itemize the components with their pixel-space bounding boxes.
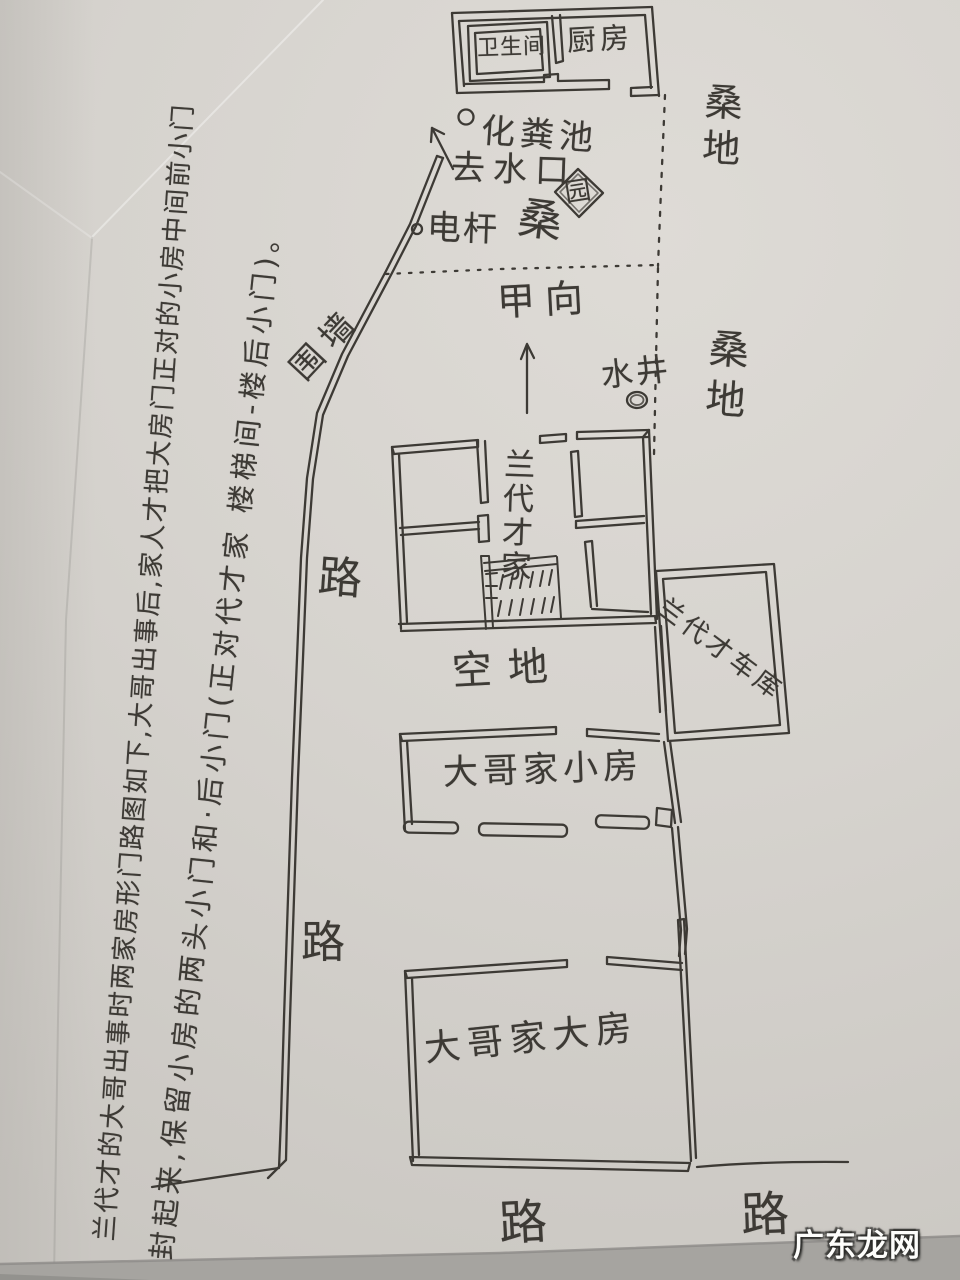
kitchen-label: 厨房 — [566, 22, 634, 56]
drain-outlet-label: 去水口 — [450, 151, 577, 191]
mulberry-field-right-label: 桑地 — [699, 327, 748, 430]
road-label-bottom-right: 路 — [740, 1189, 790, 1241]
mulberry-field-top-label: 桑地 — [696, 81, 741, 175]
main-house-label: 兰代才家 — [496, 447, 533, 584]
mulberry-scribble: 桑 — [515, 195, 564, 246]
watermark: 广东龙网 — [793, 1230, 921, 1263]
water-well-label: 水井 — [599, 352, 672, 393]
direction-arrow — [521, 344, 534, 413]
road-label-left-lower: 路 — [301, 920, 345, 966]
photographed-paper-sketch: 兰代才的大哥出事时两家房形门路图如下,大哥出事后,家人才把大房门正对的小房中间前… — [0, 0, 960, 1280]
power-pole-label: 电杆 — [426, 211, 499, 249]
open-ground-label: 空地 — [451, 645, 565, 693]
garden-label: 园 — [563, 177, 593, 208]
septic-tank-circle — [459, 110, 474, 125]
facing-direction-label: 甲向 — [496, 279, 594, 324]
small-house-label: 大哥家小房 — [442, 749, 643, 793]
road-label-left-upper: 路 — [316, 555, 363, 604]
well-circle — [627, 392, 647, 408]
bathroom-label: 卫生间 — [477, 35, 547, 60]
road-edge-line — [697, 1162, 848, 1167]
road-label-bottom-center: 路 — [498, 1197, 549, 1250]
